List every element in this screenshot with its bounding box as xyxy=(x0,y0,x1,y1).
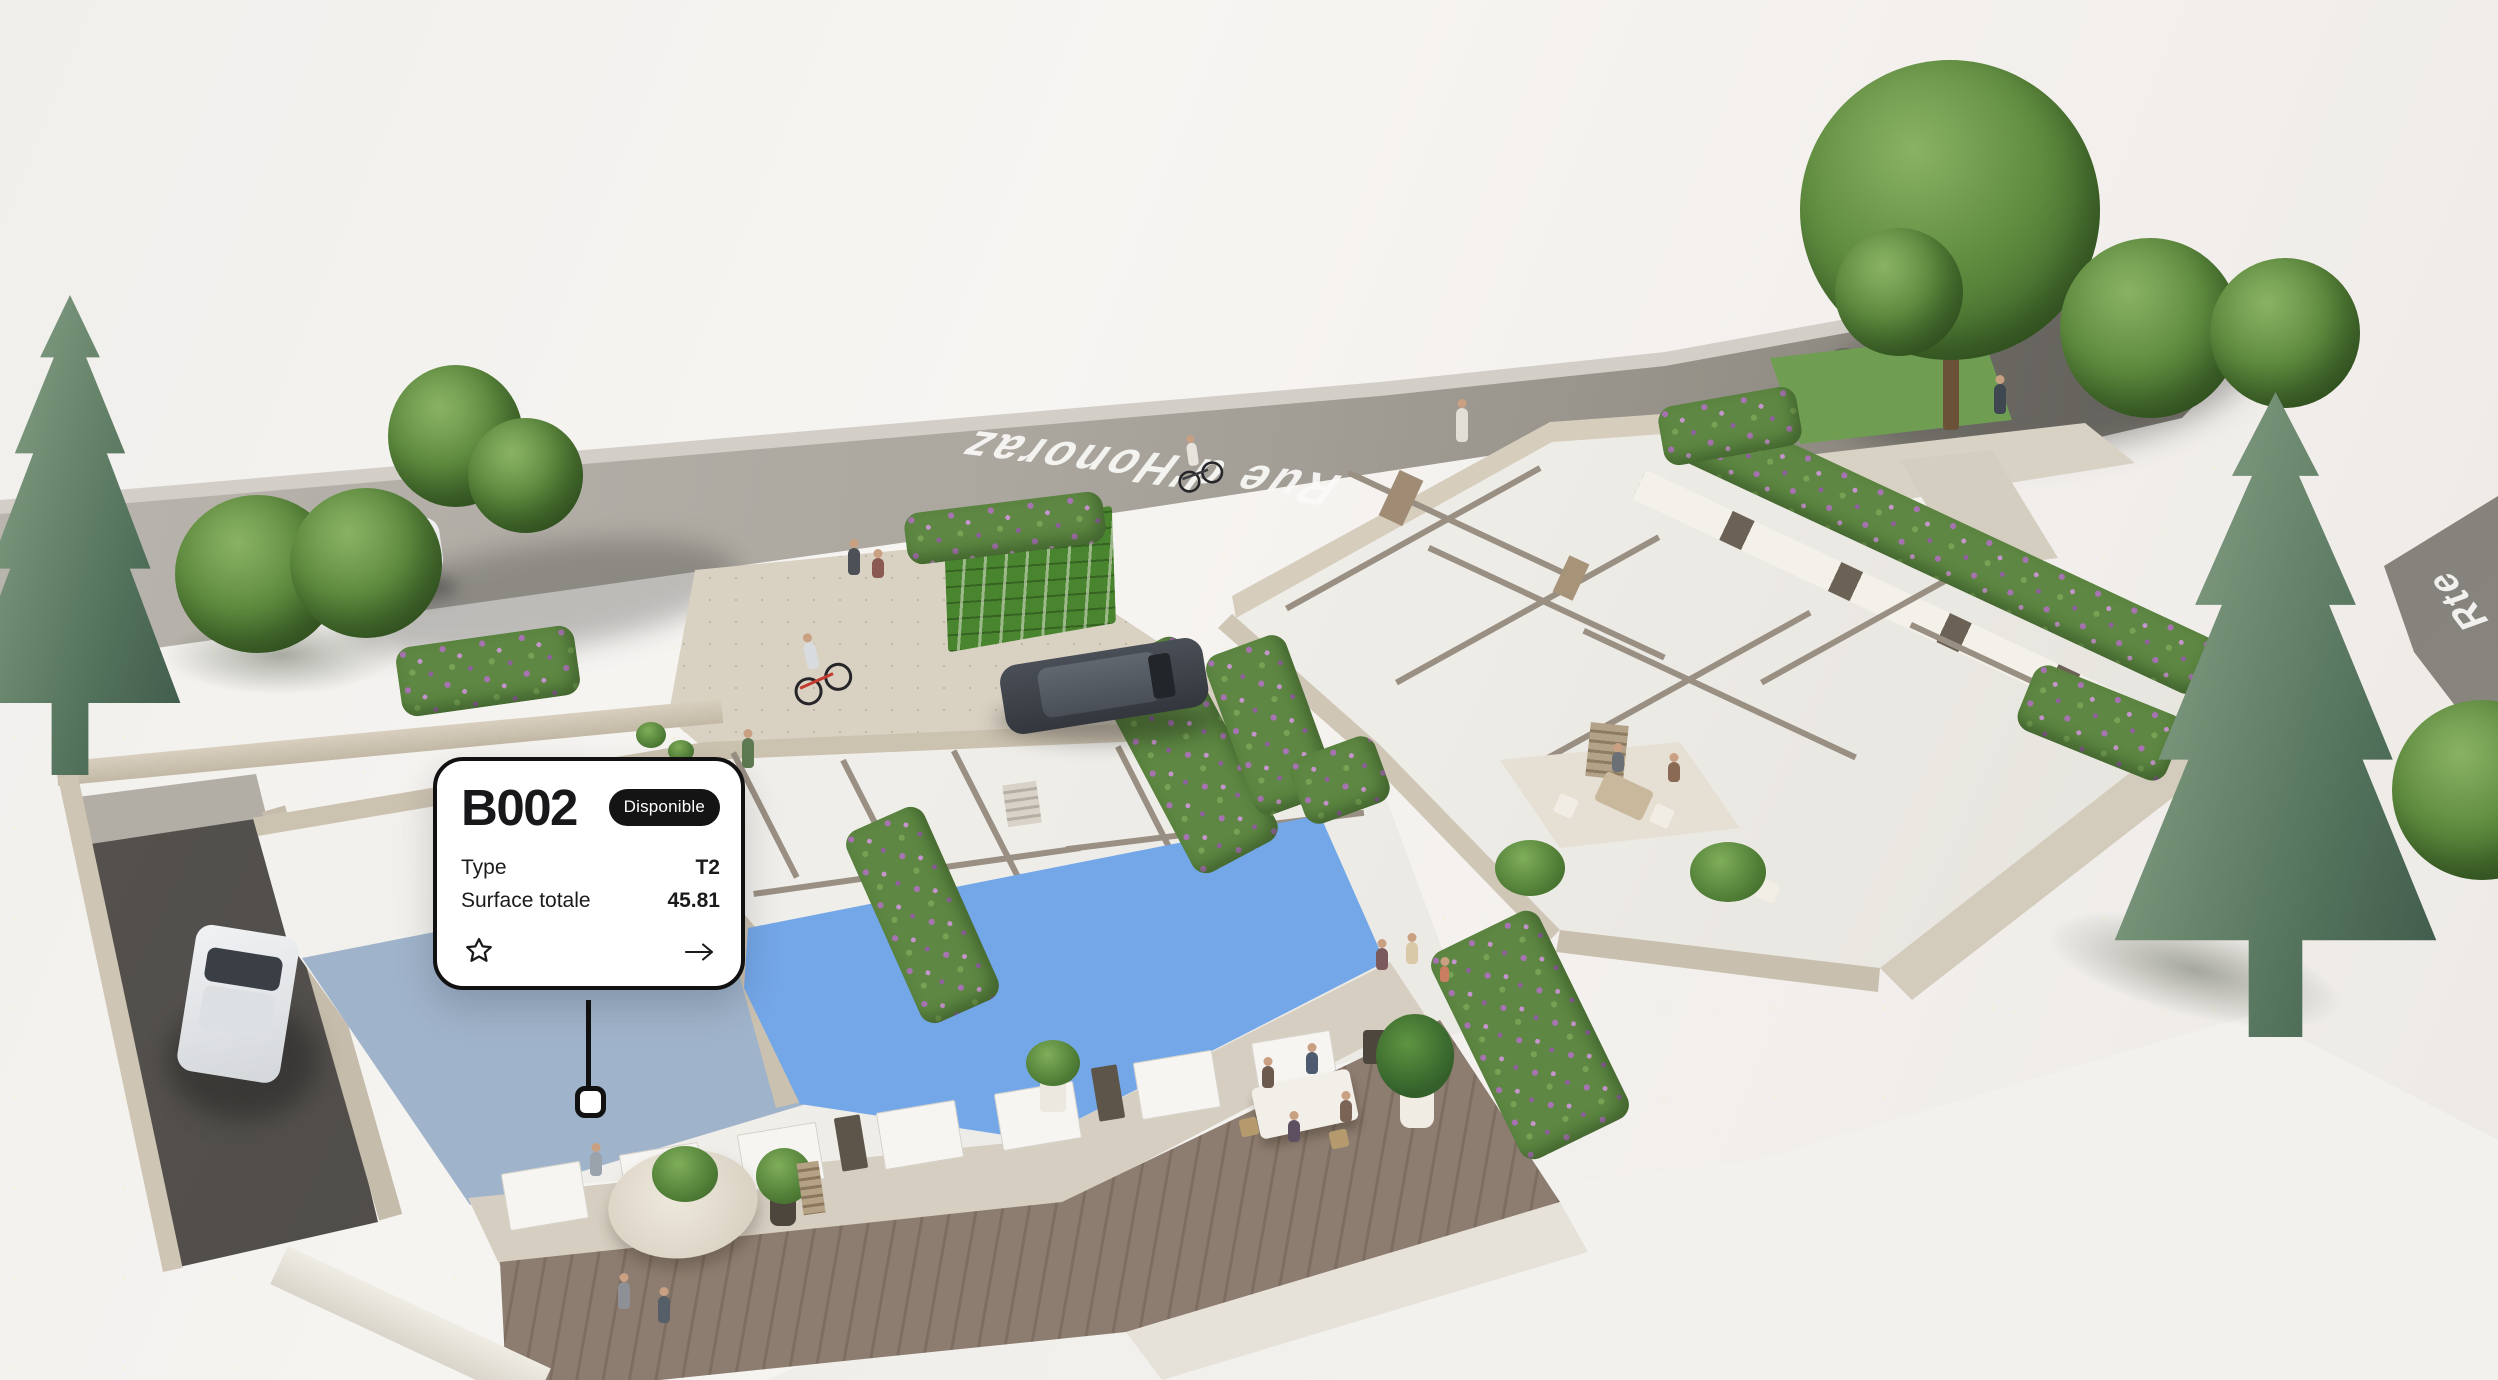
chair xyxy=(1238,1116,1259,1137)
unit-specs: Type T2 Surface totale 45.81 xyxy=(461,856,720,913)
marker-connector-line xyxy=(586,1000,591,1090)
pedestrian xyxy=(1456,408,1468,442)
tree xyxy=(290,488,442,638)
tree xyxy=(1835,228,1963,356)
potted-plant xyxy=(1026,1040,1080,1086)
cyclist xyxy=(1173,437,1225,491)
parked-car xyxy=(169,922,309,1087)
pedestrian xyxy=(742,738,754,768)
spec-label: Surface totale xyxy=(461,889,591,913)
spec-row-type: Type T2 xyxy=(461,856,720,880)
unit-card-header: B002 Disponible xyxy=(461,782,720,833)
unit-card-footer xyxy=(461,935,720,969)
potted-palm xyxy=(1376,1014,1454,1098)
seated-person xyxy=(1406,942,1418,964)
spec-label: Type xyxy=(461,856,507,880)
pedestrian xyxy=(848,548,860,575)
site-plan-3d-viewport[interactable]: Rue d'Honoraz Rte xyxy=(0,0,2498,1380)
tree xyxy=(468,418,583,533)
spec-value: T2 xyxy=(695,856,720,880)
pedestrian xyxy=(872,558,884,578)
seated-person xyxy=(1612,752,1624,772)
staircase xyxy=(1002,781,1042,827)
seated-person xyxy=(1262,1066,1274,1088)
cyclist xyxy=(784,630,860,706)
seated-person xyxy=(1668,762,1680,782)
seated-person xyxy=(590,1152,602,1176)
grass-tuft xyxy=(636,722,666,748)
tree xyxy=(2210,258,2360,408)
pedestrian xyxy=(618,1282,630,1309)
seated-person xyxy=(1306,1052,1318,1074)
tree-trunk xyxy=(1943,352,1959,430)
detail-arrow-icon xyxy=(683,940,717,964)
cyclist-rider xyxy=(1186,442,1199,466)
tree xyxy=(2392,700,2498,880)
seated-person xyxy=(1288,1120,1300,1142)
cyclist-rider xyxy=(802,641,819,670)
favorite-star-icon xyxy=(462,935,496,969)
availability-badge: Disponible xyxy=(609,789,720,826)
bush xyxy=(1495,840,1565,896)
favorite-button[interactable] xyxy=(462,935,496,969)
pedestrian xyxy=(1994,384,2006,414)
details-button[interactable] xyxy=(683,940,717,964)
bush xyxy=(1690,842,1766,902)
unit-id-title: B002 xyxy=(461,782,577,833)
chair xyxy=(1328,1128,1349,1149)
seated-person xyxy=(1340,1100,1352,1122)
unit-info-card: B002 Disponible Type T2 Surface totale 4… xyxy=(433,757,745,990)
pedestrian xyxy=(658,1296,670,1323)
child xyxy=(1440,966,1449,982)
unit-map-marker[interactable] xyxy=(575,1086,606,1118)
seated-person xyxy=(1376,948,1388,970)
table-plant xyxy=(652,1146,718,1202)
spec-row-surface: Surface totale 45.81 xyxy=(461,889,720,913)
spec-value: 45.81 xyxy=(667,889,720,913)
